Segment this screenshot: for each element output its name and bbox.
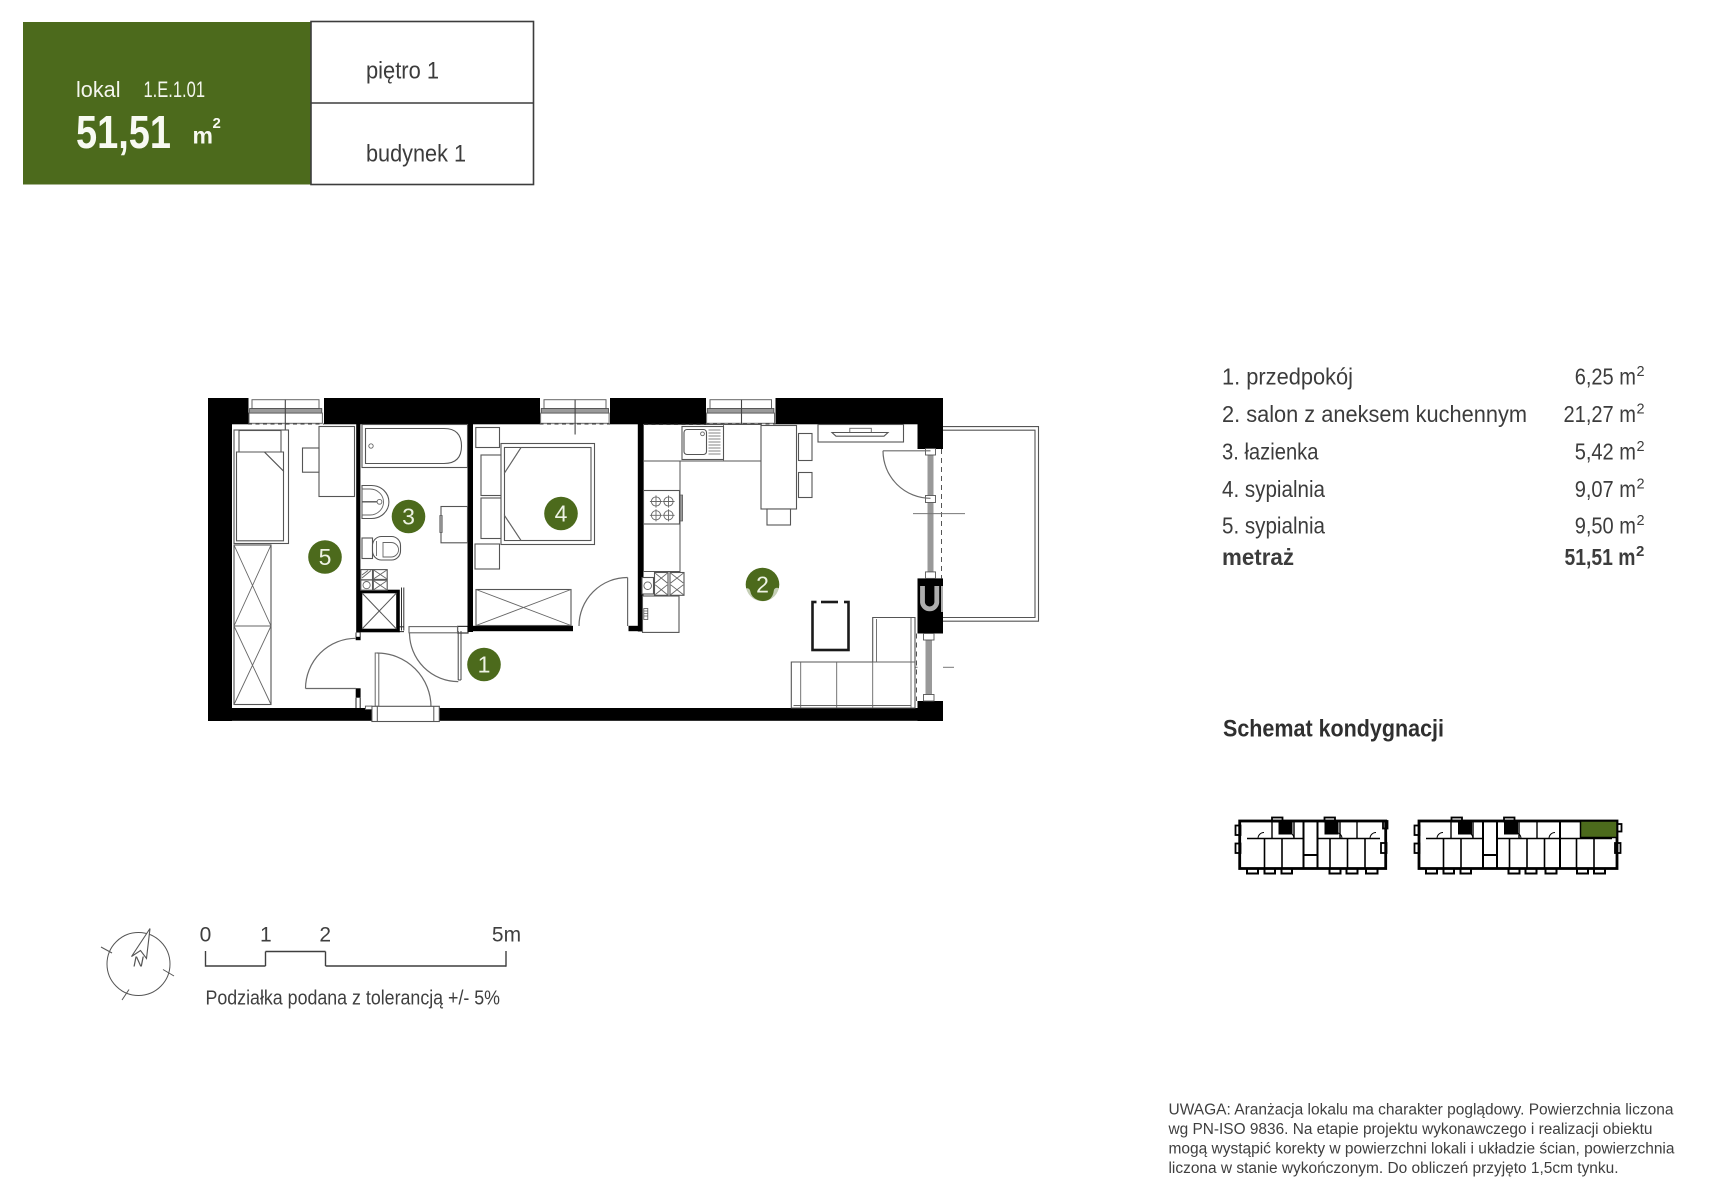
svg-text:2: 2 [1637,477,1645,493]
svg-text:metraż: metraż [1222,544,1294,570]
svg-text:0: 0 [200,924,212,947]
svg-text:2: 2 [1637,439,1645,455]
svg-text:51,51: 51,51 [76,106,171,158]
svg-text:2: 2 [213,115,221,132]
svg-text:4. sypialnia: 4. sypialnia [1222,476,1325,502]
svg-text:2: 2 [1637,364,1645,380]
svg-text:N: N [133,954,144,971]
svg-text:21,27 m: 21,27 m [1564,401,1637,427]
svg-text:liczona w stanie wykończonym.: liczona w stanie wykończonym. Do oblicze… [1169,1160,1619,1177]
svg-text:2: 2 [1637,402,1645,418]
svg-text:2: 2 [756,572,769,598]
svg-text:6,25 m: 6,25 m [1575,364,1636,390]
svg-text:5m: 5m [492,924,521,947]
svg-text:5: 5 [319,544,332,570]
svg-text:Schemat kondygnacji: Schemat kondygnacji [1223,716,1444,743]
svg-text:2. salon z aneksem kuchennym: 2. salon z aneksem kuchennym [1222,401,1527,427]
svg-text:m: m [193,123,213,149]
svg-text:5. sypialnia: 5. sypialnia [1222,513,1325,539]
svg-text:3. łazienka: 3. łazienka [1222,439,1319,465]
svg-text:piętro 1: piętro 1 [366,58,439,85]
svg-text:Podziałka podana z tolerancją: Podziałka podana z tolerancją +/- 5% [206,987,501,1010]
svg-text:wg PN-ISO 9836. Na etapie proj: wg PN-ISO 9836. Na etapie projektu wykon… [1168,1121,1653,1138]
svg-text:mogą wystąpić korekty w powier: mogą wystąpić korekty w powierzchni loka… [1169,1141,1675,1158]
svg-text:5,42 m: 5,42 m [1575,439,1636,465]
svg-text:9,07 m: 9,07 m [1575,476,1636,502]
svg-text:3: 3 [402,504,415,530]
svg-text:9,50 m: 9,50 m [1575,513,1636,539]
svg-text:4: 4 [555,501,568,527]
svg-text:2: 2 [1637,513,1645,529]
svg-text:1: 1 [260,924,272,947]
svg-text:budynek 1: budynek 1 [366,141,466,168]
svg-text:1: 1 [478,652,491,678]
svg-text:lokal: lokal [76,77,121,102]
svg-text:1.E.1.01: 1.E.1.01 [144,77,206,102]
svg-text:51,51 m: 51,51 m [1565,544,1636,570]
svg-text:1. przedpokój: 1. przedpokój [1222,364,1353,390]
svg-text:UWAGA: Aranżacja lokalu ma cha: UWAGA: Aranżacja lokalu ma charakter pog… [1169,1102,1674,1119]
svg-text:2: 2 [1636,543,1644,560]
svg-text:2: 2 [319,924,331,947]
